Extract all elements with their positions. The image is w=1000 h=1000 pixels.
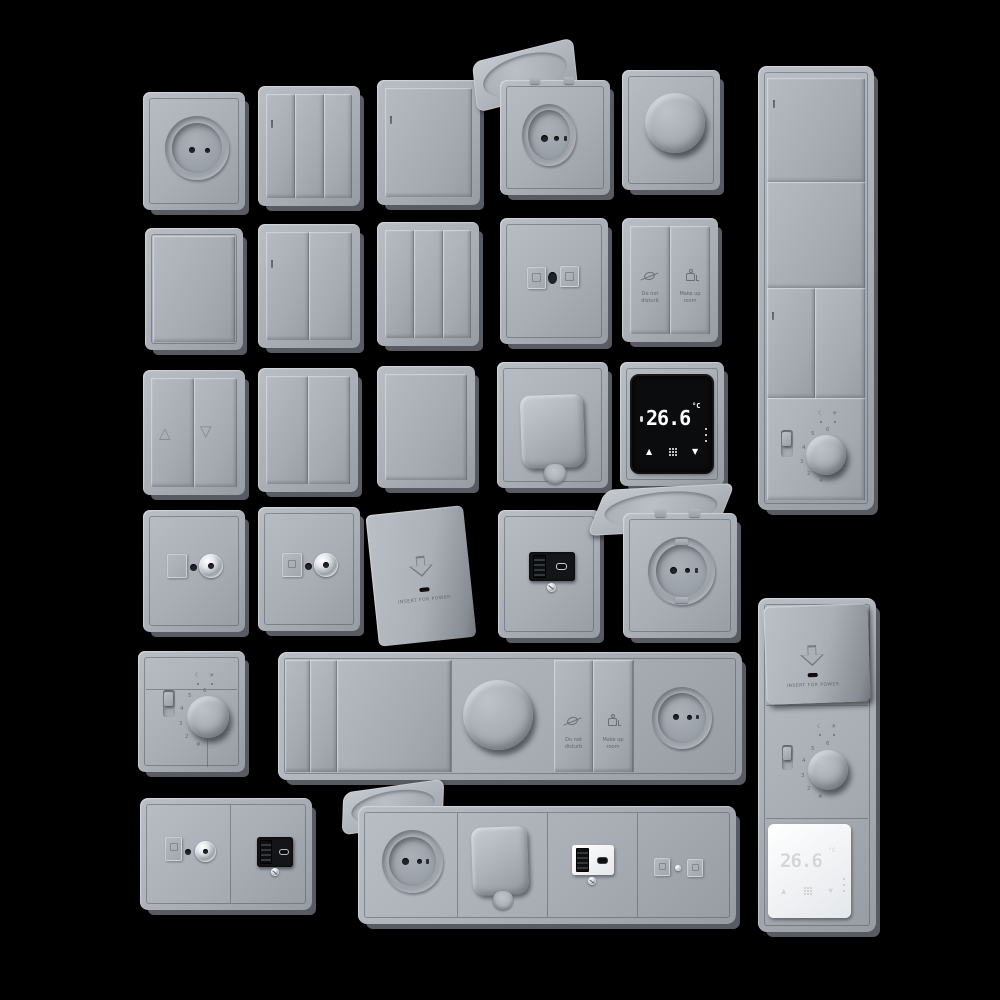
make-up-room-label: room (670, 298, 710, 304)
do-not-disturb-label: Do not (554, 737, 593, 743)
jack-port (560, 266, 579, 287)
dot (211, 683, 213, 685)
menu-dots-icon (669, 448, 677, 456)
digital-thermostat-plate: 26.6 °C ▲ ▼ (620, 362, 724, 486)
socket-well (656, 545, 707, 597)
jack-port (527, 267, 546, 289)
dot (834, 421, 836, 423)
do-not-disturb-label: disturb (630, 298, 670, 304)
sun-icon: ☀ (209, 673, 214, 679)
jack-opening (565, 272, 574, 281)
dot (843, 884, 845, 886)
lid-hinge (655, 509, 666, 517)
module-seam (766, 818, 868, 819)
pin-hole (673, 714, 679, 720)
screw (588, 877, 596, 885)
usb-module (529, 552, 575, 581)
led-hole (190, 564, 197, 571)
earth-contact (426, 859, 429, 864)
antenna-hole (548, 272, 557, 284)
card-holder-face: INSERT FOR POWER (365, 505, 476, 647)
indicator-lens (390, 116, 392, 124)
rocker (767, 78, 865, 182)
dot (675, 448, 677, 450)
cable-outlet-hood (471, 826, 529, 896)
dial-scale-4: 4 (802, 759, 806, 765)
earth-contact (696, 715, 699, 719)
cable-gland (544, 464, 566, 484)
blank-cover-plate (145, 228, 243, 350)
moon-icon: ☾ (195, 673, 200, 679)
gang-seam (547, 813, 548, 917)
dot (705, 428, 707, 430)
rocker (310, 660, 337, 772)
rocker (295, 94, 324, 198)
dot (705, 440, 707, 442)
led-hole (185, 849, 191, 855)
dial-scale-6: 6 (826, 428, 830, 434)
jack-opening (532, 273, 541, 282)
led-hole (305, 563, 312, 570)
dot (807, 887, 809, 889)
switch-3gang-plate (258, 86, 360, 206)
screw-slot (589, 879, 594, 883)
dot (804, 893, 806, 895)
pin-hole (541, 135, 548, 142)
dial-scale-2: 2 (807, 472, 811, 478)
cable-outlet-hood (520, 394, 586, 469)
socket-recess (382, 830, 443, 893)
temp-down-button: ▼ (692, 448, 698, 456)
rocker (266, 232, 309, 340)
side-led-dots (843, 878, 845, 892)
jack-port (654, 858, 670, 876)
do-not-disturb-label: disturb (554, 744, 593, 750)
usb-a-port (533, 555, 546, 578)
temp-down-button: ▼ (828, 888, 833, 895)
switch-2gang-plate (258, 368, 358, 492)
pin-hole (685, 568, 690, 573)
earth-clip (675, 597, 688, 603)
gang-seam (451, 660, 452, 772)
dial-scale-5: 5 (811, 747, 815, 753)
dial-scale-4: 4 (180, 707, 184, 713)
dial-scale-6: 6 (826, 742, 830, 748)
key-card-holder: INSERT FOR POWER (370, 502, 482, 650)
heating-icon (640, 416, 643, 422)
rocker (308, 376, 350, 484)
pin-hole (205, 148, 210, 153)
temperature-unit: °C (692, 402, 700, 410)
dot (669, 454, 671, 456)
do-not-disturb-label: Do not (630, 291, 670, 297)
usb-c-port (597, 857, 608, 864)
jack-port (165, 837, 182, 861)
dot (804, 887, 806, 889)
euro-socket-plate (143, 92, 245, 210)
icon-part (686, 273, 695, 281)
rocker (443, 230, 471, 338)
dial-scale-2: 2 (807, 787, 811, 793)
dot (672, 448, 674, 450)
card-slot-arrow-icon (800, 645, 825, 667)
double-frame (140, 798, 312, 910)
pin-hole (189, 147, 195, 153)
dial-scale-5: 5 (188, 694, 192, 700)
white-thermostat: 26.6 °C ▲ ▼ (768, 824, 851, 918)
vertical-multiframe: INSERT FOR POWER ☾ ☀ 6 5 4 3 2 ❄ 26.6 °C… (758, 598, 876, 932)
dot (669, 451, 671, 453)
make-up-room-label: Make up (670, 291, 710, 297)
dot (705, 434, 707, 436)
usb-a-port (576, 848, 589, 872)
dot (807, 893, 809, 895)
gang-seam (637, 813, 638, 917)
covered-socket-plate (623, 513, 737, 638)
jack-opening (659, 863, 666, 870)
up-triangle-icon: △ (159, 426, 171, 441)
rocker (767, 288, 815, 398)
usb-a-port (260, 840, 272, 864)
thermostat-dial (187, 696, 229, 738)
temperature-value: 26.6 (646, 406, 690, 430)
switch-2gang-plate (258, 224, 360, 348)
dial-scale-6: 6 (203, 689, 207, 695)
dial-scale-3: 3 (800, 460, 804, 466)
frost-icon: ❄ (819, 479, 824, 485)
dial-scale-2: 2 (185, 735, 189, 741)
jack-port (687, 859, 703, 877)
coax-connector (199, 554, 223, 578)
icon-part (608, 718, 617, 726)
coax-connector (195, 841, 216, 862)
mode-slider (782, 745, 793, 770)
earth-contact (564, 136, 567, 141)
mode-slider (781, 430, 793, 457)
dot (197, 683, 199, 685)
frost-icon: ❄ (818, 795, 823, 801)
usb-module (572, 845, 614, 875)
sun-icon: ☀ (831, 724, 836, 730)
icon-part (618, 720, 621, 726)
mode-slider (163, 690, 175, 717)
menu-dots-icon (804, 887, 812, 895)
rocker (285, 660, 310, 772)
jack-opening (288, 560, 296, 568)
temp-up-button: ▲ (646, 448, 652, 456)
moon-icon: ☾ (818, 411, 823, 417)
dial-scale-3: 3 (179, 722, 183, 728)
status-led (419, 587, 429, 592)
indicator-lens (773, 100, 775, 108)
connector-pin-hole (203, 849, 208, 854)
screw (675, 865, 681, 871)
usb-module (257, 837, 293, 867)
connector-pin-hole (208, 563, 214, 569)
switch-3gang-plate (377, 222, 479, 346)
screw-slot (549, 585, 555, 590)
dot (807, 890, 809, 892)
status-led (808, 673, 818, 677)
frost-icon: ❄ (196, 743, 201, 749)
rocker (767, 182, 865, 288)
temp-up-button: ▲ (781, 888, 786, 895)
dot (675, 451, 677, 453)
lid-hinge (689, 509, 700, 517)
rocker (815, 288, 865, 398)
icon-part (696, 275, 699, 281)
do-not-disturb-icon (565, 715, 581, 729)
dial-scale-4: 4 (802, 446, 806, 452)
socket-well (172, 123, 222, 173)
slider-handle (782, 432, 791, 446)
thermostat-dial (806, 435, 846, 475)
dot (672, 454, 674, 456)
usb-c-port (556, 563, 567, 570)
usb-c-port (279, 849, 289, 855)
switch-1gang-plate (377, 366, 475, 488)
indicator-lens (271, 120, 273, 128)
make-up-room-icon (606, 714, 622, 729)
dot (843, 890, 845, 892)
usb-charger-plate (498, 510, 600, 638)
dot (804, 890, 806, 892)
dot (669, 448, 671, 450)
horizontal-multiframe: Do not disturb Make up room (278, 652, 742, 780)
rocker (324, 94, 352, 198)
coax-connector (314, 553, 338, 577)
dot (833, 734, 835, 736)
dimmer-knob (463, 680, 533, 750)
dot (810, 887, 812, 889)
sun-icon: ☀ (832, 411, 837, 417)
rocker (266, 376, 308, 484)
tv-data-outlet-plate (500, 218, 608, 344)
socket-recess (522, 104, 576, 166)
gang-seam (457, 813, 458, 917)
lid-hinge (564, 77, 574, 84)
dial-scale-3: 3 (801, 774, 805, 780)
card-holder-face: INSERT FOR POWER (763, 603, 870, 705)
blind-up-rocker (151, 378, 194, 487)
indicator-lens (271, 260, 273, 268)
screw-slot (272, 870, 277, 874)
slider-handle (164, 692, 173, 706)
insert-for-power-label: INSERT FOR POWER (385, 594, 465, 608)
rocker (385, 374, 467, 480)
insert-for-power-label: INSERT FOR POWER (773, 682, 853, 690)
socket-recess (652, 687, 712, 749)
socket-well (658, 693, 706, 743)
jack-opening (692, 864, 699, 871)
slider-handle (783, 747, 791, 760)
dot (843, 878, 845, 880)
dot (675, 454, 677, 456)
make-up-room-icon (684, 269, 700, 284)
earth-contact (695, 568, 698, 573)
coax-outlet-plate (258, 507, 360, 631)
jack-opening (170, 843, 178, 851)
gang-seam (230, 805, 231, 903)
dimmer-knob (645, 93, 705, 153)
jack-port (282, 553, 302, 577)
jack-port (167, 554, 187, 578)
temperature-value: 26.6 (780, 850, 822, 872)
pin-hole (402, 858, 409, 865)
plate-groove (149, 516, 239, 626)
thermostat-screen: 26.6 °C ▲ ▼ (632, 376, 712, 472)
rocker (385, 230, 414, 338)
blind-cover (153, 236, 235, 342)
screw (271, 868, 279, 876)
socket-recess (165, 116, 229, 180)
lid-hinge (530, 77, 540, 84)
card-slot-arrow-icon (408, 555, 434, 578)
cable-outlet-plate (497, 362, 608, 488)
blind-switch-plate: △ ▽ (143, 370, 245, 495)
hotel-service-switch-plate: Do not disturb Make up room (622, 218, 718, 342)
make-up-room-label: room (593, 744, 633, 750)
socket-well (528, 110, 570, 160)
dot (672, 451, 674, 453)
dimmer-plate (622, 70, 720, 190)
dot (819, 734, 821, 736)
socket-recess (648, 537, 715, 605)
pin-hole (554, 136, 559, 141)
temperature-unit: °C (828, 846, 836, 854)
module-seam (146, 689, 237, 690)
analog-thermostat-plate: ☾ ☀ 6 5 4 3 2 ❄ (138, 651, 245, 772)
gang-seam (633, 660, 634, 772)
module-seam (207, 739, 208, 767)
pin-hole (687, 715, 692, 720)
pin-hole (417, 859, 422, 864)
screw (547, 583, 556, 592)
horizontal-multiframe (358, 806, 736, 924)
thermostat-dial (808, 750, 848, 790)
rocker (309, 232, 352, 340)
rocker (414, 230, 443, 338)
icon-part (802, 647, 823, 665)
coax-outlet-plate (143, 510, 245, 632)
rocker (337, 660, 451, 772)
do-not-disturb-icon (642, 270, 658, 284)
rocker (266, 94, 295, 198)
indicator-lens (772, 312, 774, 320)
dot (810, 893, 812, 895)
connector-pin-hole (323, 562, 329, 568)
dot (810, 890, 812, 892)
cable-gland (493, 891, 513, 910)
vertical-multiframe: ☾ ☀ 6 5 4 3 2 ❄ (758, 66, 874, 510)
switch-1gang-plate (377, 80, 480, 205)
side-led-dots (705, 428, 707, 442)
make-up-room-label: Make up (593, 737, 633, 743)
pin-hole (670, 567, 677, 574)
covered-socket-plate (500, 80, 610, 195)
module-seam (766, 705, 868, 706)
rocker (385, 88, 472, 197)
dial-scale-5: 5 (811, 432, 815, 438)
dot (820, 421, 822, 423)
moon-icon: ☾ (817, 724, 822, 730)
render-scene: ☾ ☀ 6 5 4 3 2 ❄ (0, 0, 1000, 1000)
down-triangle-icon: ▽ (200, 424, 212, 439)
socket-well (389, 837, 436, 886)
